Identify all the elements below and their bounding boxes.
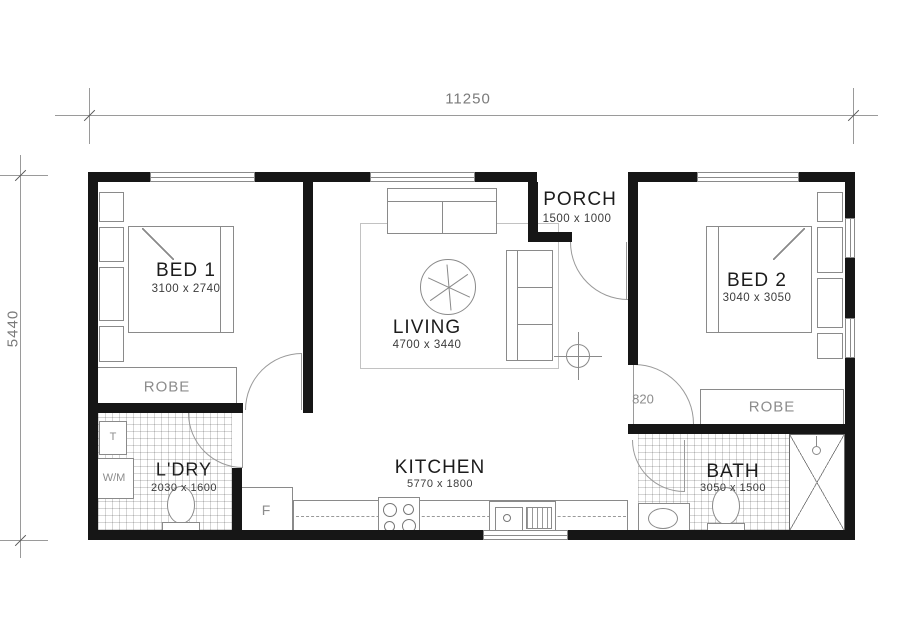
wall-top-segment xyxy=(628,172,698,182)
armchair-cushion-divider xyxy=(517,287,552,288)
shower-head xyxy=(812,446,821,455)
kitchen-label: KITCHEN xyxy=(395,457,485,479)
floor-plan-canvas: 11250 5440 ROBE xyxy=(0,0,908,638)
vanity-basin xyxy=(648,508,678,529)
sink-drainer xyxy=(526,507,552,529)
bed2-left-wall xyxy=(628,182,638,365)
top-dimension-line xyxy=(55,115,878,116)
bath-label: BATH xyxy=(706,461,759,483)
bed1-sheet-fold xyxy=(142,228,174,260)
washing-machine-label: W/M xyxy=(103,472,126,484)
laundry-tub-label: T xyxy=(110,431,117,443)
living-label: LIVING xyxy=(393,317,461,339)
kitchen-overhead-cupboard-line xyxy=(296,516,626,517)
bed2-side-unit xyxy=(817,333,843,359)
left-dim-extension-top xyxy=(0,175,48,176)
porch-size: 1500 x 1000 xyxy=(543,213,612,225)
bed1-sheet-line xyxy=(220,227,221,332)
armchair-cushion-divider xyxy=(517,324,552,325)
wall-right-segment xyxy=(845,257,855,319)
living-sofa xyxy=(387,188,497,234)
bed2-side-unit xyxy=(817,192,843,222)
ceiling-fan-symbol xyxy=(420,259,476,315)
bed1-side-unit xyxy=(99,192,124,222)
burner xyxy=(383,503,397,517)
bed2-size: 3040 x 3050 xyxy=(723,292,792,304)
laundry-door-leaf xyxy=(242,413,243,468)
kitchen-size: 5770 x 1800 xyxy=(407,478,473,490)
fridge-label: F xyxy=(262,502,271,518)
wall-right-segment xyxy=(845,357,855,540)
wall-bottom-segment xyxy=(567,530,855,540)
light-point-cross-v xyxy=(578,332,579,380)
bed1-living-wall xyxy=(303,182,313,413)
bed2-label: BED 2 xyxy=(727,270,787,292)
bed2-side-unit xyxy=(817,227,843,273)
bed1-side-unit xyxy=(99,326,124,362)
laundry-size: 2030 x 1600 xyxy=(151,482,217,494)
bed1-side-unit xyxy=(99,267,124,321)
bed2-side-unit xyxy=(817,278,843,328)
armchair-back-line xyxy=(517,251,518,360)
living-armchair xyxy=(506,250,553,361)
bed1-door-leaf xyxy=(301,353,302,410)
sink-drain xyxy=(503,514,511,522)
wall-left xyxy=(88,172,98,540)
left-dim-extension-bottom xyxy=(0,540,48,541)
sofa-cushion-divider xyxy=(442,201,443,233)
wall-bottom-segment xyxy=(88,530,484,540)
bed1-laundry-wall xyxy=(88,403,243,413)
bath-size: 3050 x 1500 xyxy=(700,482,766,494)
bed1-size: 3100 x 2740 xyxy=(152,283,221,295)
window-bed2-top xyxy=(697,172,799,182)
window-bed2-right-2 xyxy=(845,318,855,358)
porch-label: PORCH xyxy=(543,189,617,211)
bed2-sheet-line xyxy=(718,227,719,332)
burner xyxy=(403,504,414,515)
laundry-label: L'DRY xyxy=(156,460,212,481)
bath-door-leaf xyxy=(684,440,685,492)
front-door-leaf xyxy=(626,242,627,300)
window-living xyxy=(370,172,475,182)
wall-right-segment xyxy=(845,172,855,219)
window-bed2-right-1 xyxy=(845,218,855,258)
window-bed1 xyxy=(150,172,255,182)
left-dimension-line xyxy=(20,155,21,558)
bed1-door-arc xyxy=(245,353,302,410)
wall-top-segment xyxy=(254,172,371,182)
porch-bottom-wall xyxy=(528,232,572,242)
laundry-kitchen-stub-wall xyxy=(232,468,242,540)
overall-width-dimension: 11250 xyxy=(445,91,491,108)
wall-top-segment xyxy=(474,172,537,182)
bed2-sheet-fold xyxy=(773,228,805,260)
front-door-arc xyxy=(570,242,628,300)
living-size: 4700 x 3440 xyxy=(393,339,462,351)
bath-top-wall xyxy=(628,424,855,434)
bed2-robe-label: ROBE xyxy=(749,399,796,416)
door-opening-dimension: 820 xyxy=(632,392,654,407)
bed1-side-unit xyxy=(99,227,124,262)
overall-height-dimension: 5440 xyxy=(5,301,22,357)
window-kitchen xyxy=(483,530,568,540)
bed1-robe-label: ROBE xyxy=(144,379,191,396)
bed1-label: BED 1 xyxy=(156,260,216,282)
